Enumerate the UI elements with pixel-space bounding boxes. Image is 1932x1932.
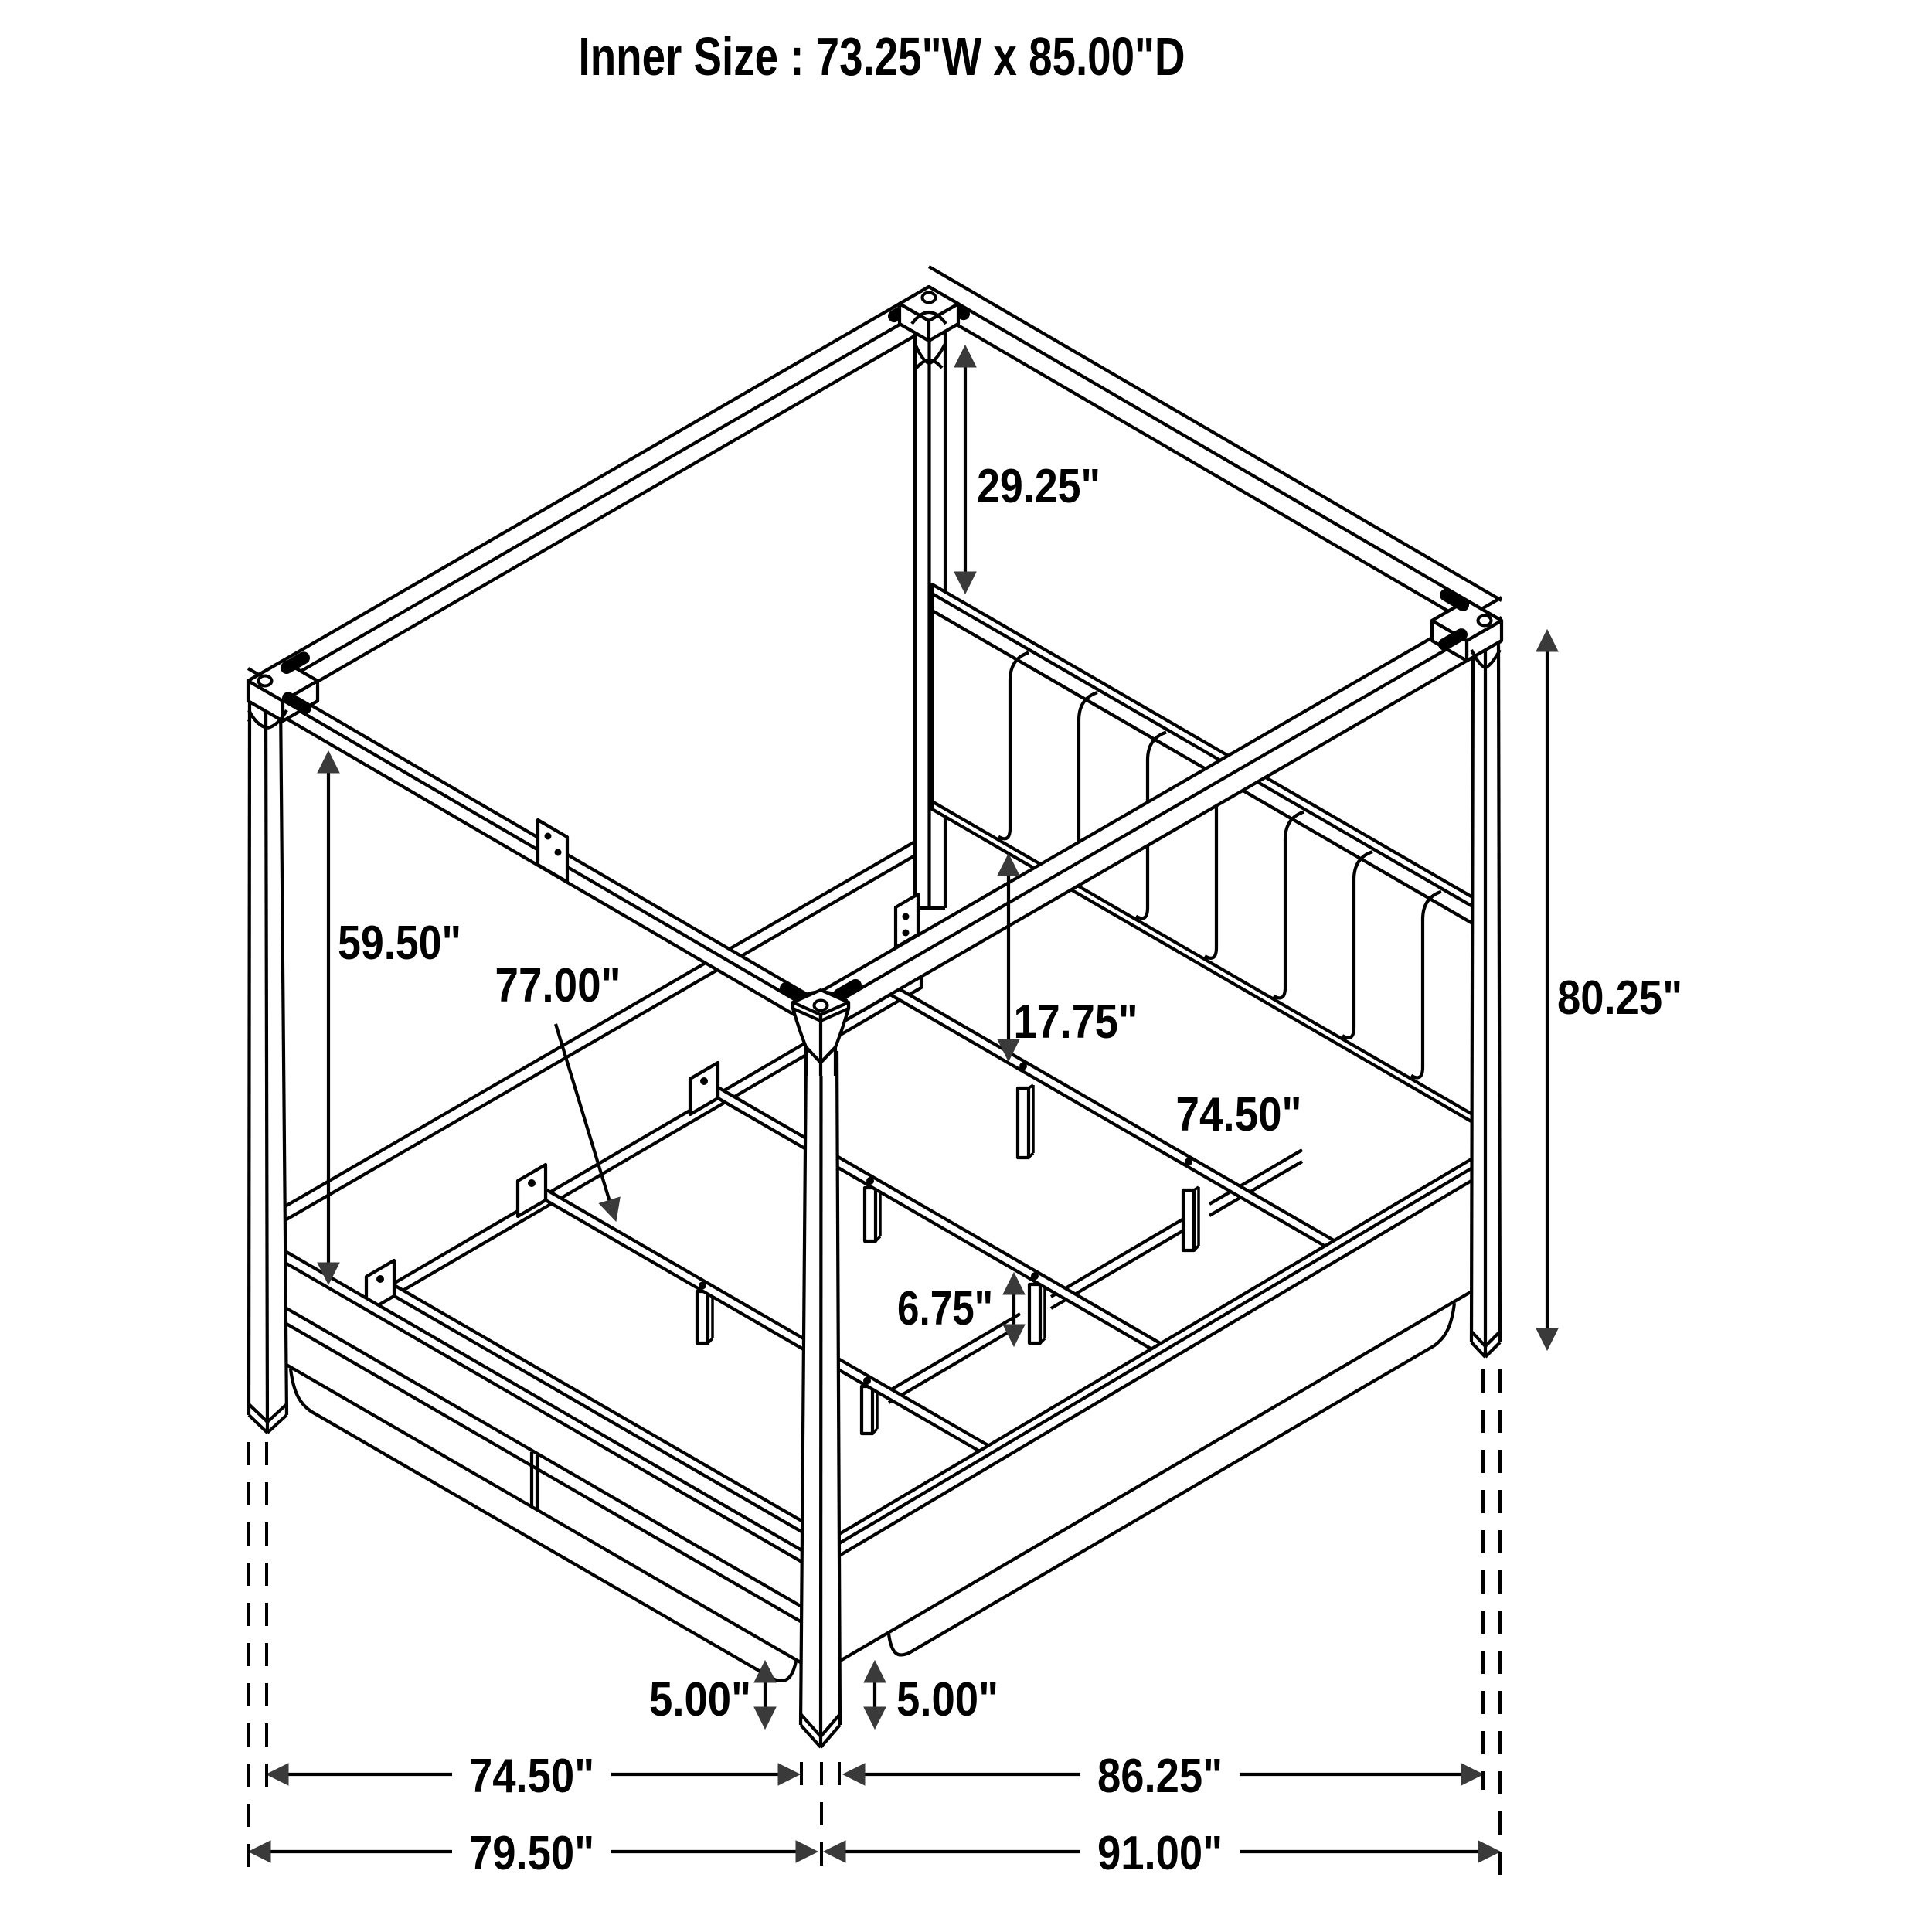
svg-text:74.50": 74.50" xyxy=(469,1750,594,1803)
svg-text:79.50": 79.50" xyxy=(469,1827,594,1880)
svg-text:5.00": 5.00" xyxy=(649,1673,751,1726)
svg-text:74.50": 74.50" xyxy=(1176,1088,1302,1141)
svg-text:6.75": 6.75" xyxy=(897,1282,993,1335)
svg-text:77.00": 77.00" xyxy=(495,959,621,1012)
svg-text:91.00": 91.00" xyxy=(1097,1827,1223,1880)
svg-text:86.25": 86.25" xyxy=(1097,1750,1223,1803)
svg-text:59.50": 59.50" xyxy=(338,917,461,970)
svg-text:29.25": 29.25" xyxy=(977,460,1100,513)
svg-text:80.25": 80.25" xyxy=(1557,971,1682,1025)
svg-text:5.00": 5.00" xyxy=(896,1673,998,1726)
svg-text:Inner Size : 73.25"W x 85.00"D: Inner Size : 73.25"W x 85.00"D xyxy=(579,26,1185,87)
svg-text:17.75": 17.75" xyxy=(1014,995,1138,1049)
